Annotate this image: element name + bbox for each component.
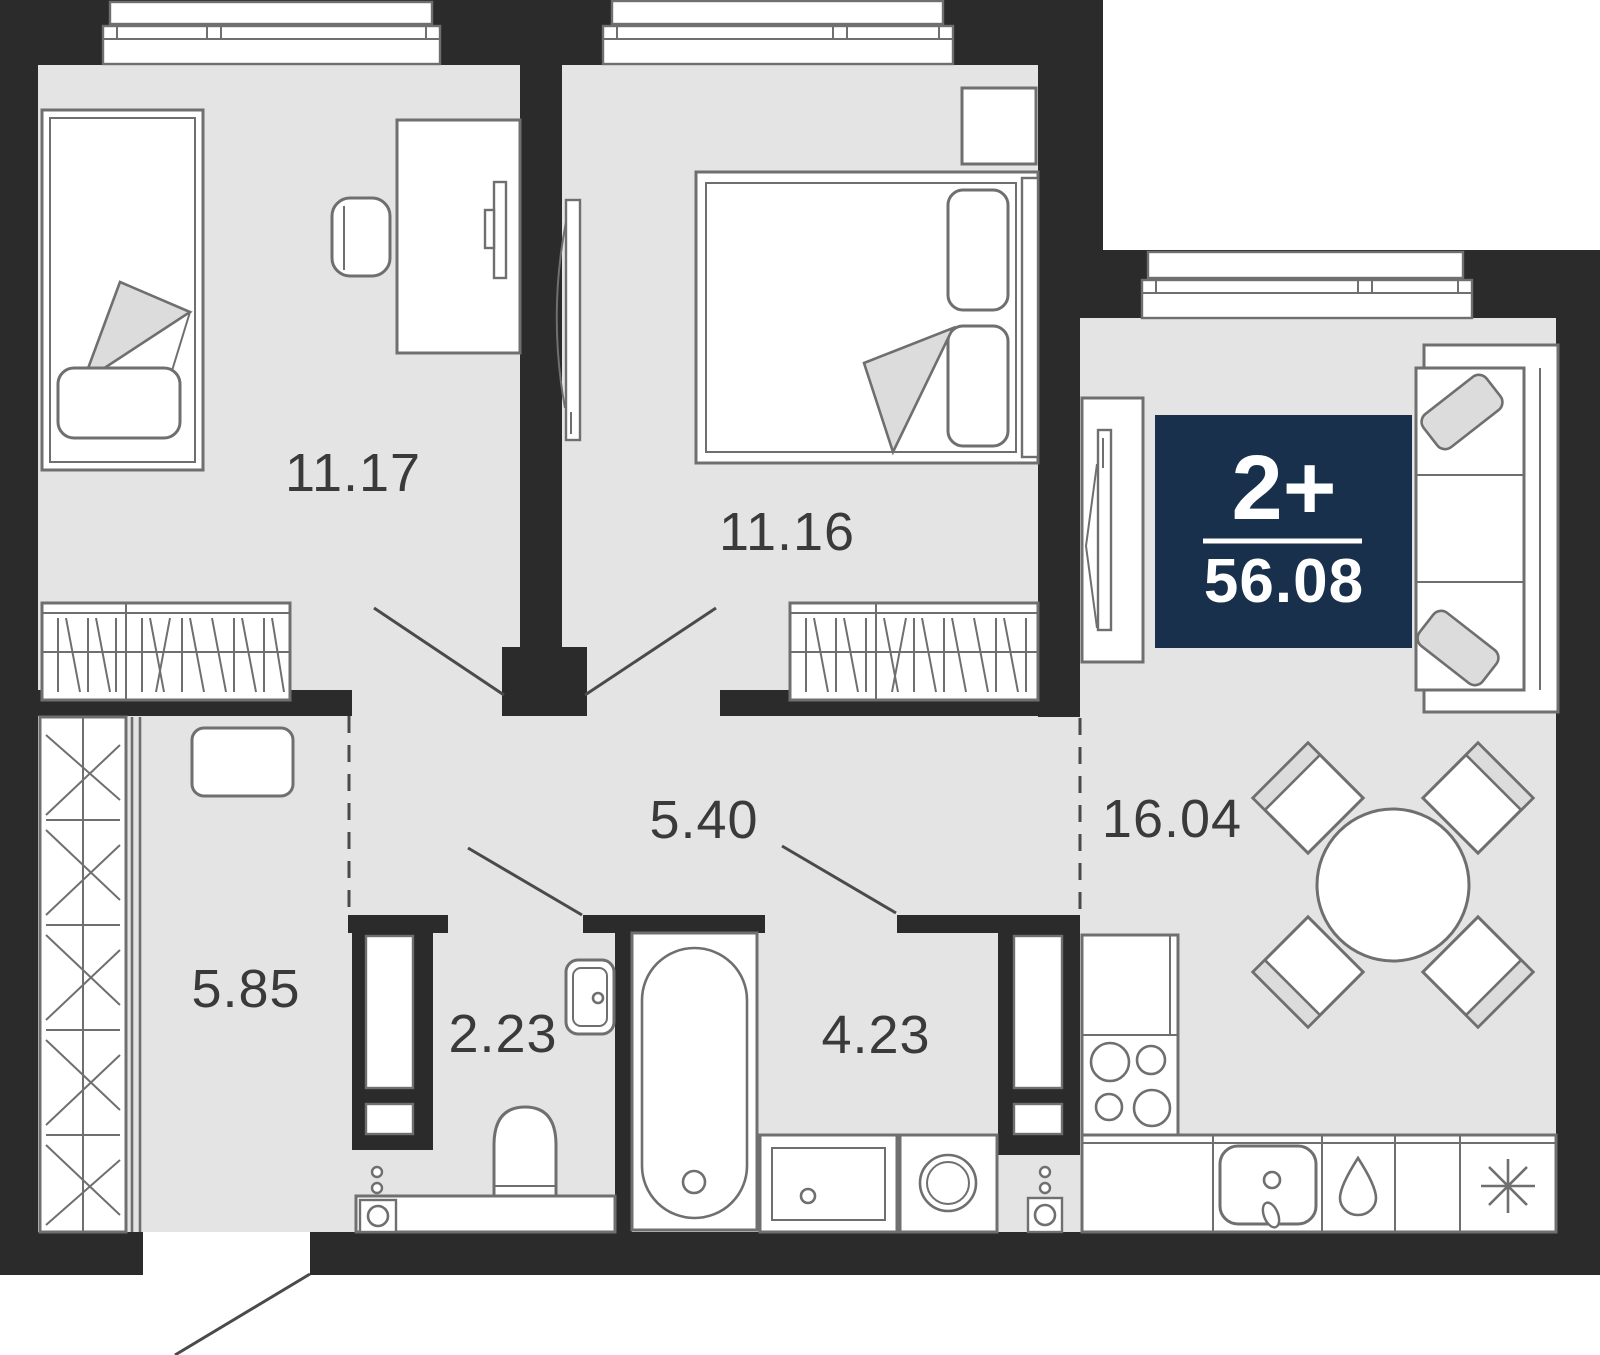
washing-machine xyxy=(900,1135,997,1232)
wall-right xyxy=(1556,250,1600,1275)
apartment-badge: 2+ 56.08 xyxy=(1155,415,1412,648)
window-living xyxy=(1142,252,1472,318)
single-bed xyxy=(42,110,203,470)
pillow xyxy=(58,368,180,438)
floor-plan: 11.17 11.16 5.40 16.04 5.85 2.23 4.23 2+… xyxy=(0,0,1600,1355)
sofa xyxy=(1414,345,1558,712)
nightstand xyxy=(962,88,1036,164)
label-kitchen-living-area: 16.04 xyxy=(1102,789,1242,849)
desk xyxy=(397,120,520,353)
vanity-sink xyxy=(760,1135,897,1232)
monitor xyxy=(494,182,506,278)
floor-plan-canvas: 11.17 11.16 5.40 16.04 5.85 2.23 4.23 2+… xyxy=(0,0,1600,1355)
snowflake-icon xyxy=(1481,1159,1535,1213)
plumbing-point xyxy=(372,1183,382,1193)
wall-left xyxy=(0,0,38,1275)
duct-cavity xyxy=(366,1104,413,1134)
label-bedroom2-area: 11.16 xyxy=(719,502,855,562)
kitchen-sink xyxy=(1220,1146,1316,1230)
dining-table xyxy=(1317,809,1469,961)
toilet xyxy=(494,1107,556,1196)
badge-room-type: 2+ xyxy=(1232,437,1337,539)
window-bedroom1 xyxy=(103,2,440,64)
duct-cavity xyxy=(1014,1104,1062,1134)
label-bathroom-area: 4.23 xyxy=(821,1005,930,1065)
door-swing-entrance xyxy=(175,1274,310,1355)
plumbing-point xyxy=(1040,1167,1050,1177)
pillow xyxy=(948,190,1008,310)
headboard xyxy=(1022,178,1038,457)
label-bedroom1-area: 11.17 xyxy=(285,443,421,503)
wardrobe-bedroom1 xyxy=(42,603,290,700)
desk-chair xyxy=(332,198,390,276)
hall-cabinet xyxy=(192,728,293,796)
badge-total-area: 56.08 xyxy=(1204,547,1364,616)
window-bedroom2 xyxy=(603,1,953,64)
plumbing-point xyxy=(372,1167,382,1177)
label-wc-area: 2.23 xyxy=(448,1004,557,1064)
tv-console xyxy=(1082,398,1143,662)
pillow xyxy=(948,326,1008,446)
water-heater xyxy=(1028,1198,1062,1232)
wc-sink xyxy=(566,960,614,1034)
hall-wardrobe xyxy=(40,717,140,1232)
wall-wc-bath xyxy=(615,933,632,1232)
wardrobe-bedroom2 xyxy=(790,603,1038,700)
plumbing-point xyxy=(1040,1183,1050,1193)
wall-bedroom2-living xyxy=(1038,250,1080,717)
bathtub xyxy=(632,933,757,1230)
duct-cavity xyxy=(366,936,413,1088)
entrance-opening xyxy=(143,1232,310,1275)
wall-upper-column xyxy=(1038,0,1103,250)
label-corridor-area: 5.40 xyxy=(649,790,758,850)
label-entry-hall-area: 5.85 xyxy=(191,959,300,1019)
double-bed xyxy=(696,172,1038,463)
wall-wc-top-right xyxy=(583,915,765,933)
tv xyxy=(1098,430,1111,630)
kitchen-counter-bottom xyxy=(1082,1135,1556,1232)
wall-between-bedrooms xyxy=(520,65,562,647)
duct-cavity xyxy=(1014,936,1062,1088)
wall-door-stub xyxy=(502,647,587,716)
